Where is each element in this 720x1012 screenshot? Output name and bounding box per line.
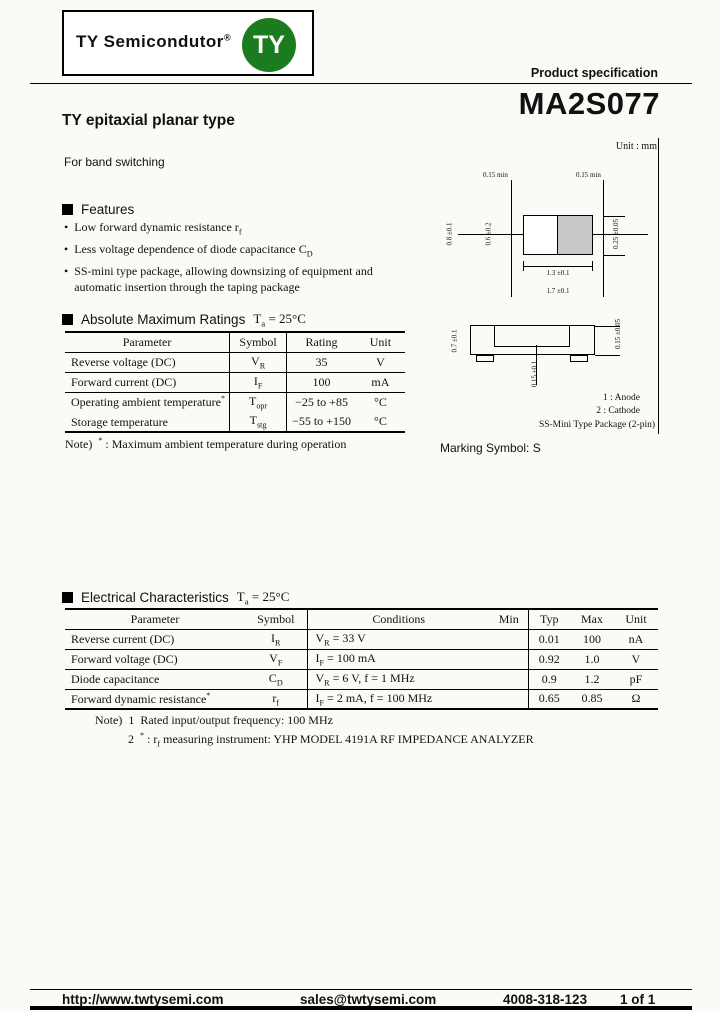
band-dim-tick-top (603, 216, 625, 217)
dim-label-side-height: 0.7 ±0.1 (451, 329, 459, 352)
ec-conditions: VR = 33 V (307, 629, 490, 649)
amr-unit: °C (356, 392, 405, 412)
dim-label-overall-width: 1.7 ±0.1 (528, 287, 588, 295)
body-width-tick-right (592, 261, 593, 271)
lead-thickness-tick-bottom (595, 355, 620, 356)
amr-param: Reverse voltage (DC) (65, 352, 230, 372)
pin2-label: 2 : Cathode (555, 406, 640, 416)
ec-unit: nA (614, 629, 658, 649)
cathode-band (557, 215, 593, 255)
ec-min (490, 669, 528, 689)
ec-max: 1.2 (570, 669, 614, 689)
ec-symbol: IR (245, 629, 307, 649)
ec-typ: 0.01 (528, 629, 570, 649)
ec-symbol: CD (245, 669, 307, 689)
side-view-lead-left (476, 355, 494, 362)
pin1-label: 1 : Anode (555, 393, 640, 403)
table-row: Reverse current (DC) IR VR = 33 V 0.01 1… (65, 629, 658, 649)
footer-email: sales@twtysemi.com (300, 992, 436, 1007)
page-title: TY epitaxial planar type (62, 112, 235, 130)
ec-symbol: rf (245, 689, 307, 709)
ec-table: Parameter Symbol Conditions Min Typ Max … (65, 608, 658, 710)
side-view-lead-right (570, 355, 588, 362)
amr-unit: °C (356, 412, 405, 432)
amr-symbol: IF (230, 372, 287, 392)
amr-rating: 100 (287, 372, 356, 392)
header-rule (30, 83, 692, 84)
marking-symbol: Marking Symbol: S (440, 441, 541, 455)
diagram-right-border (658, 138, 659, 434)
amr-col-header: Rating (287, 332, 356, 352)
body-width-tick-left (523, 261, 524, 271)
amr-col-header: Symbol (230, 332, 287, 352)
ec-header-row: Parameter Symbol Conditions Min Typ Max … (65, 609, 658, 629)
ec-param: Reverse current (DC) (65, 629, 245, 649)
ty-logo-badge-icon: TY (242, 18, 296, 72)
amr-temp-condition: Ta = 25°C (253, 311, 306, 329)
ec-col-header: Typ (528, 609, 570, 629)
dim-label-height-outer: 0.8 ±0.1 (446, 222, 454, 245)
side-view-body (494, 325, 570, 347)
product-spec-label: Product specification (531, 66, 658, 80)
ec-max: 1.0 (570, 649, 614, 669)
package-type-label: SS-Mini Type Package (2-pin) (490, 420, 655, 430)
feature-text: Low forward dynamic resistance rf (74, 219, 410, 241)
table-row: Reverse voltage (DC) VR 35 V (65, 352, 405, 372)
amr-param: Forward current (DC) (65, 372, 230, 392)
ec-min (490, 649, 528, 669)
amr-unit: V (356, 352, 405, 372)
part-number: MA2S077 (519, 86, 660, 122)
ec-conditions: VR = 6 V, f = 1 MHz (307, 669, 490, 689)
ec-col-header: Max (570, 609, 614, 629)
ec-unit: V (614, 649, 658, 669)
logo-brand-name: TY Semicondutor (76, 32, 224, 51)
feature-text: SS-mini type package, allowing downsizin… (74, 263, 410, 301)
bullet-icon: • (64, 263, 68, 301)
section-square-icon (62, 592, 73, 603)
footer-page-number: 1 of 1 (620, 992, 655, 1007)
feature-item: • Low forward dynamic resistance rf (64, 219, 416, 241)
amr-param: Storage temperature (65, 412, 230, 432)
amr-symbol: VR (230, 352, 287, 372)
ec-col-header: Conditions (307, 609, 490, 629)
amr-note: Note) * : Maximum ambient temperature du… (65, 436, 346, 452)
ec-unit: Ω (614, 689, 658, 709)
ec-symbol: VF (245, 649, 307, 669)
ec-col-header: Min (490, 609, 528, 629)
bullet-icon: • (64, 219, 68, 241)
section-square-icon (62, 204, 73, 215)
table-row: Forward current (DC) IF 100 mA (65, 372, 405, 392)
lead-thickness-tick-top (595, 326, 620, 327)
ec-param: Forward dynamic resistance* (65, 689, 245, 709)
amr-param: Operating ambient temperature* (65, 392, 230, 412)
feature-text: Less voltage dependence of diode capacit… (74, 241, 410, 263)
logo-box: TY Semicondutor® TY (62, 10, 314, 76)
table-row: Storage temperature Tstg −55 to +150 °C (65, 412, 405, 432)
footer-phone: 4008-318-123 (503, 992, 587, 1007)
feature-item: • SS-mini type package, allowing downsiz… (64, 263, 416, 301)
dim-label-lead-thickness: 0.15 ±0.05 (614, 319, 622, 349)
ec-conditions: IF = 2 mA, f = 100 MHz (307, 689, 490, 709)
feature-item: • Less voltage dependence of diode capac… (64, 241, 416, 263)
ec-param: Forward voltage (DC) (65, 649, 245, 669)
dim-label-height-inner: 0.6 ±0.2 (485, 222, 493, 245)
features-list: • Low forward dynamic resistance rf • Le… (64, 219, 416, 301)
band-dim-tick-bottom (603, 255, 625, 256)
package-diagram: Unit : mm 0.15 min 0.15 min 0.8 ±0.1 0.6… (435, 135, 665, 460)
ec-typ: 0.92 (528, 649, 570, 669)
ec-heading-label: Electrical Characteristics (81, 590, 229, 605)
datasheet-page: { "colors": { "brand_green": "#1a7c1e", … (0, 0, 720, 1012)
amr-col-header: Unit (356, 332, 405, 352)
bullet-icon: • (64, 241, 68, 263)
dim-label-body-width: 1.3 ±0.1 (530, 269, 586, 277)
registered-trademark-icon: ® (224, 32, 231, 42)
amr-heading: Absolute Maximum Ratings Ta = 25°C (62, 311, 306, 329)
ec-temp-condition: Ta = 25°C (237, 589, 290, 607)
dim-label-lead-left: 0.15 min (483, 171, 508, 179)
table-row: Diode capacitance CD VR = 6 V, f = 1 MHz… (65, 669, 658, 689)
amr-header-row: Parameter Symbol Rating Unit (65, 332, 405, 352)
features-heading: Features (62, 202, 134, 217)
ec-max: 0.85 (570, 689, 614, 709)
amr-symbol: Topr (230, 392, 287, 412)
amr-rating: 35 (287, 352, 356, 372)
ec-note-1: Note) 1 Rated input/output frequency: 10… (95, 713, 333, 728)
ec-col-header: Symbol (245, 609, 307, 629)
ec-max: 100 (570, 629, 614, 649)
ec-min (490, 629, 528, 649)
ec-typ: 0.9 (528, 669, 570, 689)
ec-typ: 0.65 (528, 689, 570, 709)
footer-rule (30, 989, 692, 990)
amr-col-header: Parameter (65, 332, 230, 352)
logo-text: TY Semicondutor® (76, 32, 231, 52)
subtitle: For band switching (64, 155, 165, 169)
table-row: Forward dynamic resistance* rf IF = 2 mA… (65, 689, 658, 709)
features-heading-label: Features (81, 202, 134, 217)
amr-heading-label: Absolute Maximum Ratings (81, 312, 245, 327)
body-width-dim-line (523, 266, 593, 267)
ec-conditions: IF = 100 mA (307, 649, 490, 669)
ec-col-header: Parameter (65, 609, 245, 629)
footer-url: http://www.twtysemi.com (62, 992, 224, 1007)
ec-min (490, 689, 528, 709)
ec-col-header: Unit (614, 609, 658, 629)
amr-rating: −55 to +150 (287, 412, 356, 432)
amr-table: Parameter Symbol Rating Unit Reverse vol… (65, 331, 405, 433)
dim-label-band-width: 0.25 ±0.05 (612, 219, 620, 249)
table-row: Forward voltage (DC) VF IF = 100 mA 0.92… (65, 649, 658, 669)
dim-extension-line-left (511, 180, 512, 297)
ec-note-2: 2 * : rf measuring instrument: YHP MODEL… (128, 731, 534, 748)
dim-label-standoff: 0.15 ±0.1 (530, 361, 538, 388)
amr-symbol: Tstg (230, 412, 287, 432)
amr-unit: mA (356, 372, 405, 392)
unit-label: Unit : mm (616, 141, 657, 152)
ec-unit: pF (614, 669, 658, 689)
ec-param: Diode capacitance (65, 669, 245, 689)
ec-heading: Electrical Characteristics Ta = 25°C (62, 589, 289, 607)
amr-rating: −25 to +85 (287, 392, 356, 412)
table-row: Operating ambient temperature* Topr −25 … (65, 392, 405, 412)
section-square-icon (62, 314, 73, 325)
footer-bar (30, 1006, 692, 1010)
dim-label-lead-right: 0.15 min (576, 171, 601, 179)
